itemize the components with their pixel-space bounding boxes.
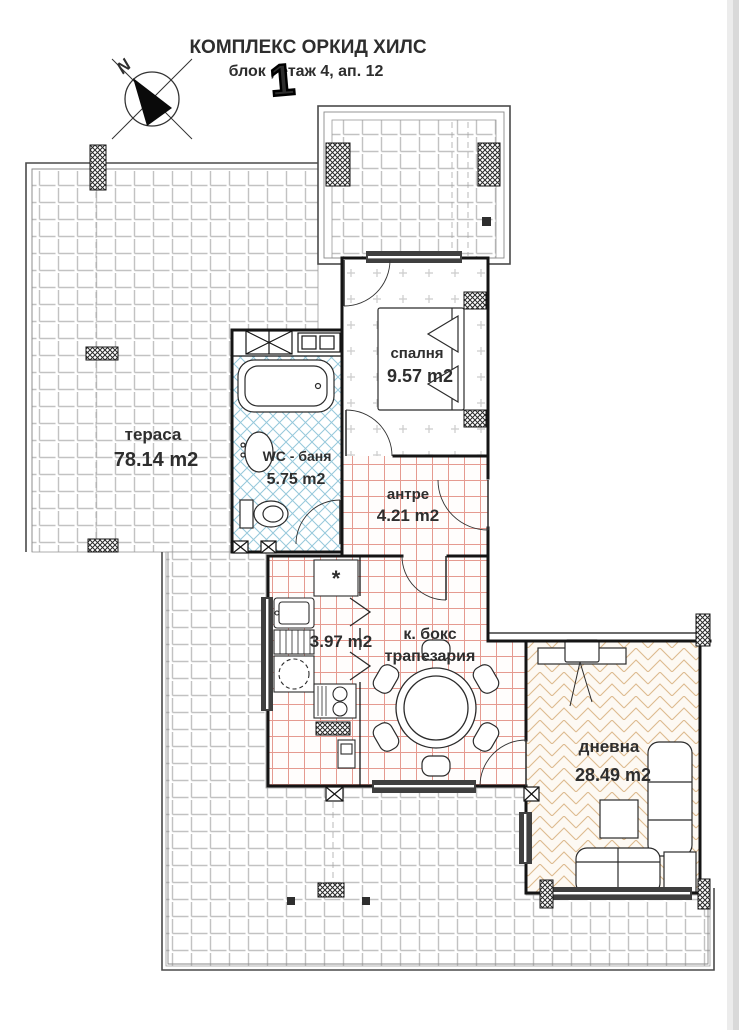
page-subtitle: блок , етаж 4, ап. 12 (229, 63, 384, 80)
handwritten-block-number: 1 (268, 55, 297, 106)
hallway-label: антре (387, 486, 429, 503)
bathroom-cabinet (298, 333, 340, 352)
bedroom-label: спалня (390, 345, 443, 362)
bathroom-area: 5.75 m2 (267, 471, 326, 488)
dishwasher (274, 630, 314, 654)
kitchen-window (261, 597, 273, 711)
kitchen-area: 3.97 m2 (310, 632, 372, 651)
ventilation-shaft (246, 331, 292, 354)
living-area: 28.49 m2 (575, 765, 651, 785)
corner-sofa (648, 742, 692, 856)
floor-plan-drawing: * (0, 0, 739, 1030)
page-edge-shadow-soft (727, 0, 733, 1030)
stove (314, 684, 356, 718)
freezer-star-symbol: * (332, 566, 341, 591)
dining-table (396, 668, 476, 748)
page-title: КОМПЛЕКС ОРКИД ХИЛС (189, 37, 426, 58)
floor-plan-page: * (0, 0, 739, 1030)
washing-machine (274, 656, 314, 692)
nightstand (464, 410, 486, 427)
dining-window (372, 780, 476, 793)
living-label: дневна (579, 737, 640, 756)
terrace-label: тераса (125, 425, 182, 444)
dining-floor-east-strip (488, 641, 526, 786)
page-edge-shadow (733, 0, 739, 1030)
nightstand (464, 292, 486, 309)
dining-label-1: к. бокс (403, 626, 456, 643)
bedroom-area: 9.57 m2 (387, 366, 453, 386)
armchair (664, 852, 696, 892)
living-south-window (546, 887, 692, 900)
toilet (240, 500, 288, 528)
terrace-area: 78.14 m2 (114, 449, 199, 471)
bathroom-label: WC - баня (263, 448, 332, 464)
kitchen-counter-hatch (316, 722, 350, 735)
bathtub (238, 360, 334, 412)
coffee-table (600, 800, 638, 838)
bedroom-window (366, 251, 462, 263)
dining-label-2: трапезария (385, 648, 476, 665)
living-west-window (519, 812, 532, 864)
kitchen-cabinet (338, 740, 355, 768)
hallway-area: 4.21 m2 (377, 506, 439, 525)
kitchen-sink (274, 598, 314, 628)
